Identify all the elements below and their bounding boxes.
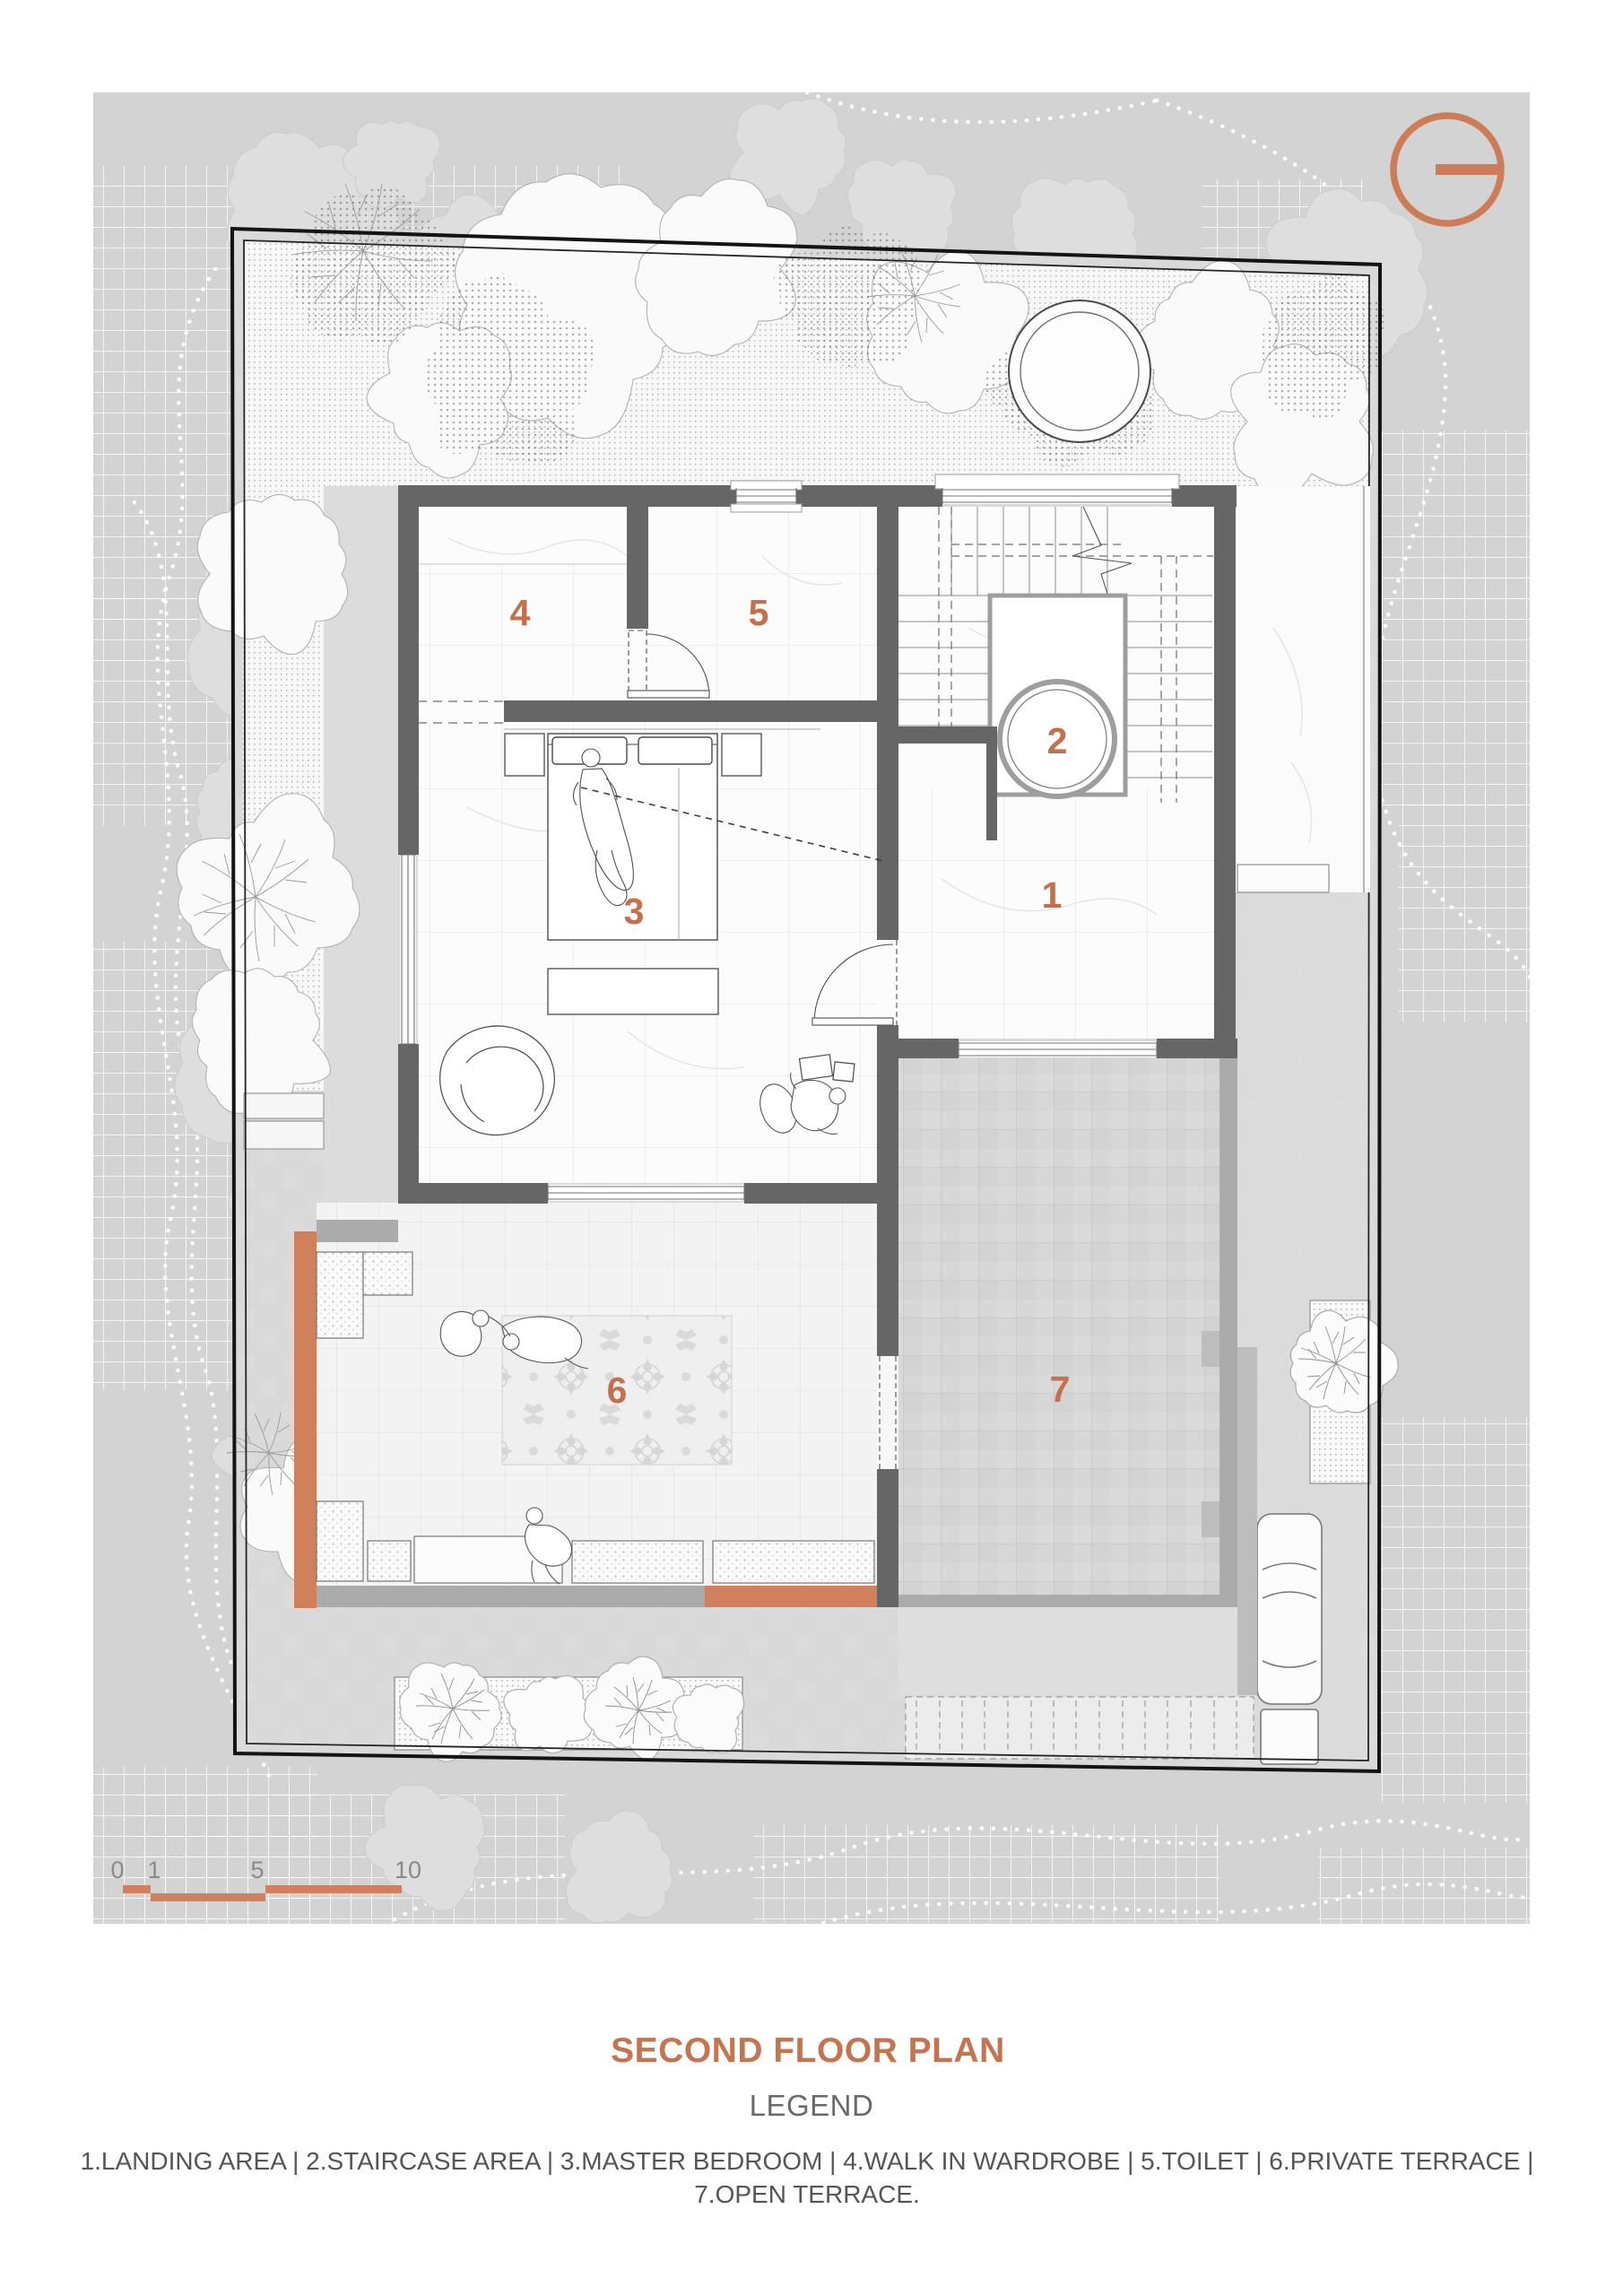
svg-text:2: 2 bbox=[1047, 720, 1068, 761]
svg-text:5: 5 bbox=[250, 1857, 264, 1883]
svg-text:7.OPEN TERRACE.: 7.OPEN TERRACE. bbox=[694, 2180, 920, 2208]
svg-text:1: 1 bbox=[1042, 874, 1063, 916]
svg-text:SECOND FLOOR PLAN: SECOND FLOOR PLAN bbox=[611, 2031, 1005, 2070]
svg-text:7: 7 bbox=[1050, 1369, 1071, 1410]
svg-text:5: 5 bbox=[749, 592, 769, 633]
svg-text:10: 10 bbox=[395, 1857, 421, 1883]
svg-text:0: 0 bbox=[110, 1857, 124, 1883]
svg-text:LEGEND: LEGEND bbox=[750, 2089, 874, 2122]
svg-text:1.LANDING AREA | 2.STAIRCASE A: 1.LANDING AREA | 2.STAIRCASE AREA | 3.MA… bbox=[81, 2147, 1534, 2175]
svg-text:6: 6 bbox=[607, 1370, 628, 1411]
svg-text:3: 3 bbox=[624, 891, 645, 932]
svg-text:1: 1 bbox=[147, 1857, 161, 1883]
svg-text:4: 4 bbox=[510, 592, 531, 633]
